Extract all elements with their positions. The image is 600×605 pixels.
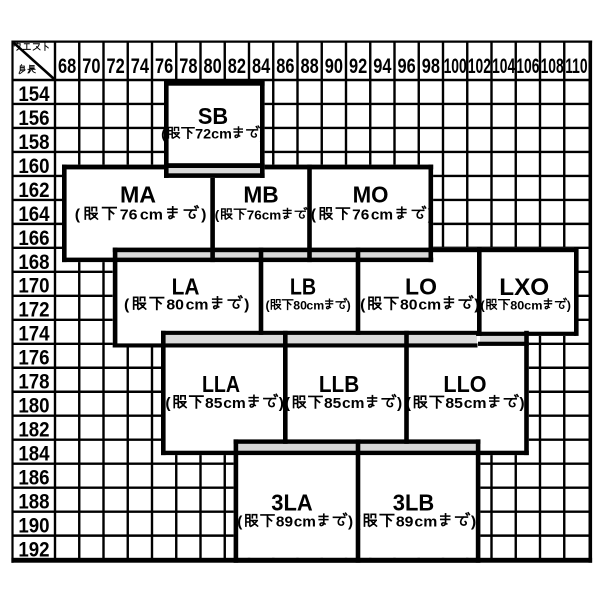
svg-text:): ) <box>260 126 265 141</box>
svg-text:85: 85 <box>324 395 341 411</box>
svg-text:76: 76 <box>120 207 138 223</box>
svg-text:): ) <box>471 514 476 531</box>
svg-text:70: 70 <box>82 54 100 77</box>
svg-text:176: 176 <box>18 347 49 370</box>
svg-text:LLB: LLB <box>319 371 359 397</box>
svg-text:(: ( <box>237 514 242 531</box>
svg-text:156: 156 <box>18 107 49 130</box>
svg-text:90: 90 <box>325 54 343 77</box>
svg-text:80: 80 <box>166 297 184 314</box>
svg-text:188: 188 <box>18 491 49 514</box>
svg-text:158: 158 <box>18 131 49 154</box>
svg-text:100: 100 <box>444 54 467 78</box>
svg-text:84: 84 <box>252 54 271 77</box>
svg-text:89: 89 <box>276 514 293 531</box>
svg-text:72: 72 <box>195 126 211 141</box>
svg-text:3LA: 3LA <box>271 490 312 516</box>
svg-text:85: 85 <box>205 395 223 412</box>
svg-text:): ) <box>201 207 206 223</box>
svg-text:cm: cm <box>371 207 393 223</box>
svg-text:MO: MO <box>353 181 389 208</box>
svg-text:182: 182 <box>18 419 49 442</box>
svg-text:80: 80 <box>400 297 417 314</box>
svg-text:cm: cm <box>211 126 232 141</box>
svg-text:89: 89 <box>396 514 414 531</box>
svg-text:): ) <box>397 395 402 411</box>
svg-text:80: 80 <box>293 299 307 313</box>
svg-text:72: 72 <box>107 54 125 77</box>
svg-text:(: ( <box>165 395 171 412</box>
svg-text:172: 172 <box>18 299 49 322</box>
svg-text:154: 154 <box>18 83 49 106</box>
svg-text:cm: cm <box>464 396 487 412</box>
svg-text:76: 76 <box>247 208 262 223</box>
svg-text:92: 92 <box>349 54 367 77</box>
svg-text:LLO: LLO <box>443 371 486 397</box>
svg-text:76: 76 <box>155 54 173 77</box>
svg-text:98: 98 <box>422 54 440 77</box>
svg-text:3LB: 3LB <box>393 490 434 516</box>
svg-text:(: ( <box>124 297 130 314</box>
svg-text:): ) <box>348 514 353 531</box>
svg-text:cm: cm <box>306 299 324 313</box>
svg-text:74: 74 <box>131 54 150 77</box>
svg-text:168: 168 <box>18 251 49 274</box>
svg-text:(: ( <box>75 207 81 223</box>
svg-text:LXO: LXO <box>499 274 549 301</box>
svg-text:96: 96 <box>398 54 416 77</box>
svg-text:LLA: LLA <box>202 371 240 397</box>
svg-text:(: ( <box>285 395 290 411</box>
svg-text:186: 186 <box>18 467 49 490</box>
svg-text:108: 108 <box>541 54 564 78</box>
svg-text:): ) <box>474 297 479 314</box>
svg-text:(: ( <box>215 208 220 223</box>
svg-text:LO: LO <box>405 273 437 299</box>
svg-text:cm: cm <box>418 297 441 314</box>
svg-text:): ) <box>567 299 571 313</box>
svg-text:104: 104 <box>492 54 515 78</box>
svg-text:cm: cm <box>342 395 364 411</box>
svg-text:86: 86 <box>276 54 294 77</box>
svg-text:170: 170 <box>18 275 49 298</box>
svg-text:180: 180 <box>18 395 49 418</box>
svg-text:106: 106 <box>516 54 539 78</box>
svg-text:80: 80 <box>510 299 524 313</box>
svg-text:160: 160 <box>18 155 49 178</box>
svg-text:): ) <box>347 299 351 313</box>
svg-text:cm: cm <box>414 514 437 531</box>
svg-text:192: 192 <box>18 539 49 562</box>
svg-text:MB: MB <box>243 181 278 207</box>
svg-text:184: 184 <box>18 443 49 466</box>
svg-text:190: 190 <box>18 515 49 538</box>
svg-text:88: 88 <box>301 54 319 77</box>
svg-text:(: ( <box>161 126 166 141</box>
svg-text:82: 82 <box>228 54 246 77</box>
svg-text:cm: cm <box>186 297 209 314</box>
svg-text:94: 94 <box>373 54 392 77</box>
svg-text:78: 78 <box>179 54 197 77</box>
svg-text:164: 164 <box>18 203 49 226</box>
svg-text:110: 110 <box>565 54 587 78</box>
svg-text:(: ( <box>311 207 316 223</box>
svg-text:166: 166 <box>18 227 49 250</box>
svg-text:162: 162 <box>18 179 49 202</box>
svg-text:80: 80 <box>204 54 222 77</box>
svg-text:): ) <box>244 297 249 314</box>
svg-text:cm: cm <box>223 395 246 412</box>
svg-text:174: 174 <box>18 323 49 346</box>
svg-text:): ) <box>428 207 433 223</box>
svg-text:85: 85 <box>445 396 463 412</box>
svg-text:): ) <box>279 395 284 412</box>
svg-text:(: ( <box>360 297 366 314</box>
svg-text:cm: cm <box>140 207 163 223</box>
svg-text:68: 68 <box>58 54 76 77</box>
svg-text:LB: LB <box>290 274 316 300</box>
svg-text:102: 102 <box>468 54 491 78</box>
svg-text:178: 178 <box>18 371 49 394</box>
svg-text:cm: cm <box>294 514 316 531</box>
svg-text:76: 76 <box>352 207 369 223</box>
svg-text:): ) <box>519 396 524 412</box>
svg-text:cm: cm <box>262 208 281 223</box>
svg-text:MA: MA <box>120 182 156 208</box>
svg-text:(: ( <box>355 514 361 531</box>
svg-text:cm: cm <box>524 299 542 313</box>
svg-text:LA: LA <box>172 273 200 299</box>
